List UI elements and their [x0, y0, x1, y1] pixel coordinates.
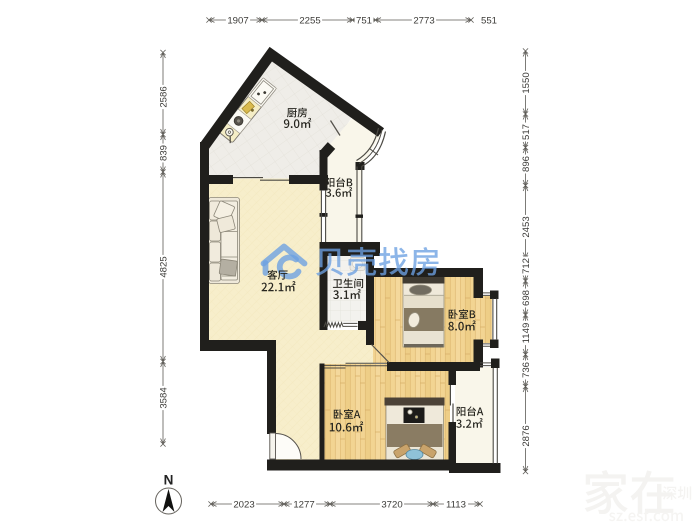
svg-text:4825: 4825 — [158, 256, 169, 277]
svg-text:896: 896 — [521, 156, 532, 172]
svg-text:1550: 1550 — [521, 72, 532, 93]
svg-text:839: 839 — [158, 145, 169, 161]
svg-text:2023: 2023 — [233, 499, 254, 510]
svg-text:698: 698 — [521, 290, 532, 306]
svg-text:1907: 1907 — [227, 15, 248, 26]
svg-text:N: N — [164, 473, 174, 488]
svg-text:517: 517 — [521, 124, 532, 140]
svg-text:1149: 1149 — [521, 323, 532, 344]
svg-text:751: 751 — [356, 15, 372, 26]
svg-text:2876: 2876 — [521, 425, 532, 446]
svg-text:1277: 1277 — [293, 499, 314, 510]
svg-text:2773: 2773 — [413, 15, 434, 26]
svg-text:2255: 2255 — [299, 15, 320, 26]
svg-text:736: 736 — [521, 362, 532, 378]
svg-text:551: 551 — [481, 15, 497, 26]
svg-text:3584: 3584 — [158, 387, 169, 409]
svg-text:712: 712 — [521, 258, 532, 274]
svg-text:2453: 2453 — [521, 216, 532, 237]
svg-text:1113: 1113 — [446, 499, 466, 510]
svg-text:2586: 2586 — [158, 86, 169, 107]
svg-text:3720: 3720 — [381, 499, 402, 510]
